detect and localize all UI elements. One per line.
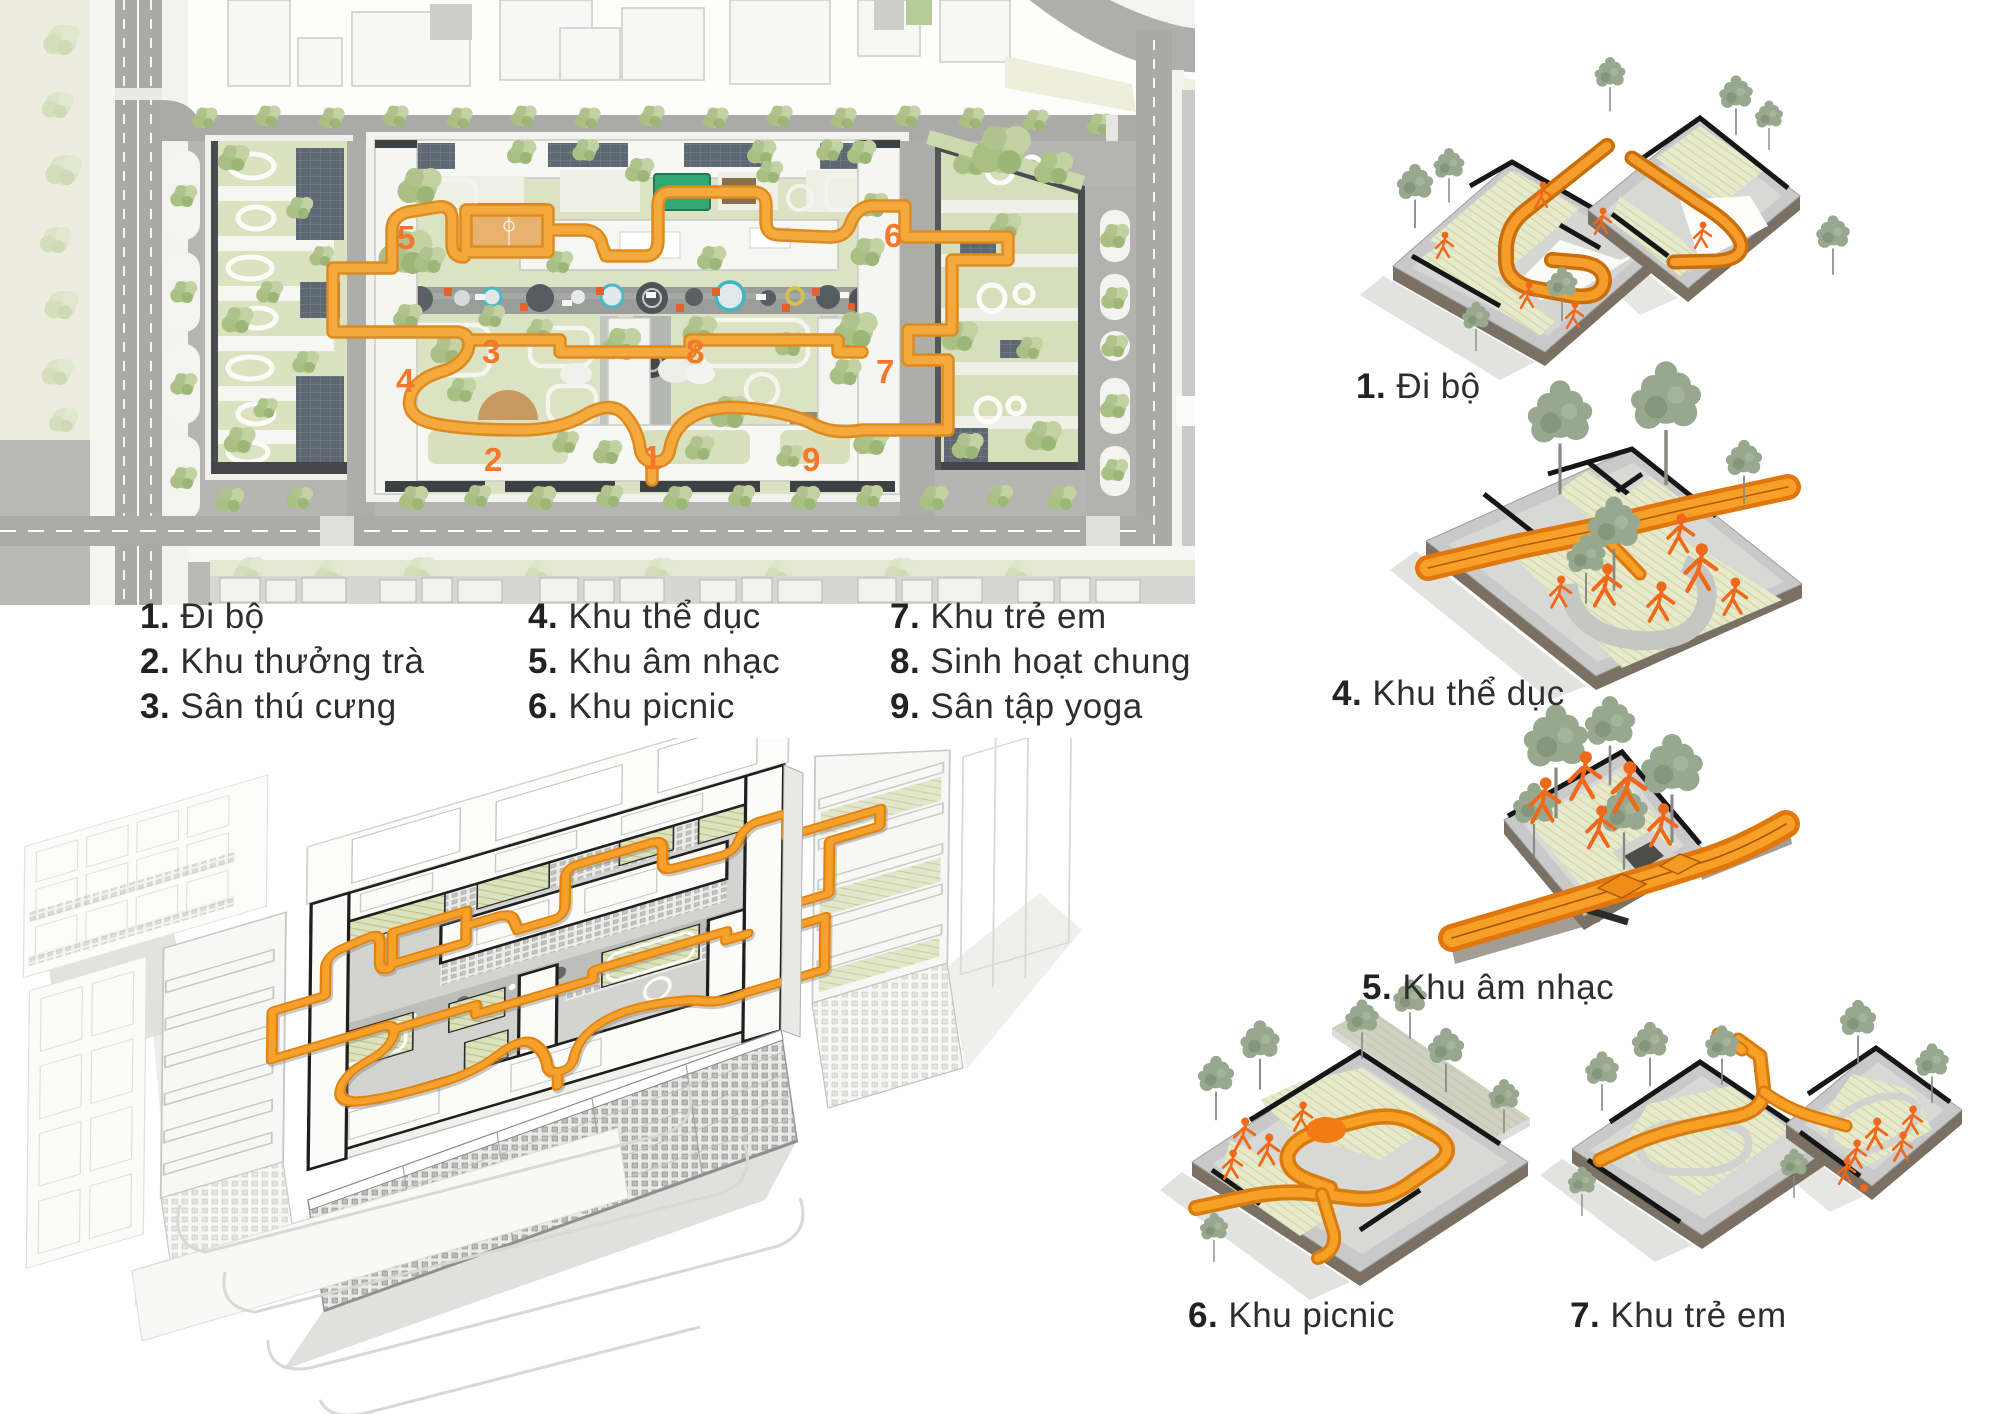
- svg-text:9: 9: [802, 441, 820, 478]
- svg-text:3: 3: [482, 333, 500, 370]
- svg-text:1: 1: [643, 439, 661, 476]
- svg-text:6: 6: [884, 217, 902, 254]
- svg-text:5: 5: [397, 219, 415, 256]
- svg-text:4: 4: [396, 362, 415, 399]
- svg-text:2: 2: [484, 441, 502, 478]
- svg-text:8: 8: [686, 333, 704, 370]
- svg-text:7: 7: [876, 353, 894, 390]
